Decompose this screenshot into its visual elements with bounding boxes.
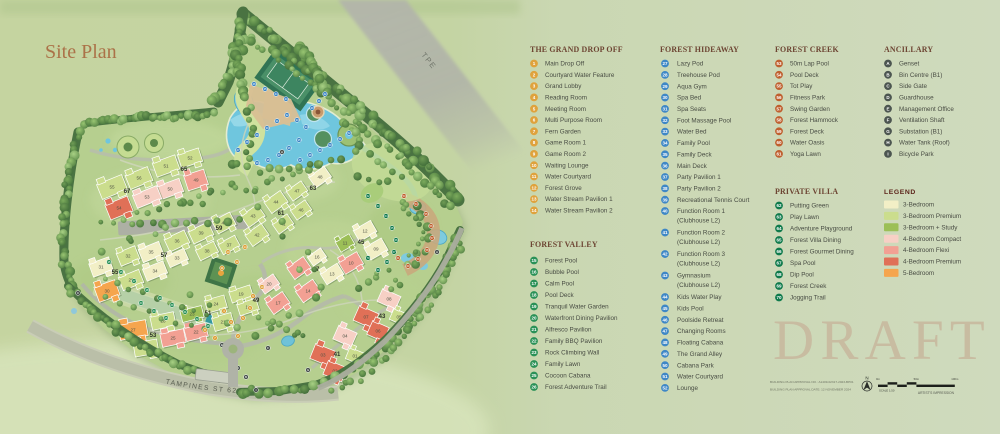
svg-text:10: 10 (260, 285, 264, 289)
svg-text:56: 56 (776, 95, 782, 100)
svg-text:54: 54 (116, 206, 122, 211)
svg-text:63: 63 (776, 215, 782, 220)
svg-text:55: 55 (112, 270, 119, 276)
svg-text:44: 44 (662, 295, 668, 300)
svg-text:Poolside Retreat: Poolside Retreat (677, 317, 724, 324)
svg-text:Management Office: Management Office (899, 106, 954, 113)
svg-text:25: 25 (164, 316, 168, 320)
svg-text:43: 43 (662, 273, 668, 278)
svg-text:53: 53 (150, 333, 157, 339)
svg-text:48: 48 (308, 153, 312, 157)
svg-text:33: 33 (174, 256, 180, 261)
svg-text:18: 18 (145, 288, 149, 292)
svg-text:48: 48 (317, 175, 323, 180)
svg-text:35: 35 (297, 138, 301, 142)
svg-text:(Clubhouse L2): (Clubhouse L2) (677, 217, 720, 224)
svg-text:65: 65 (181, 167, 188, 173)
svg-text:Family Pool: Family Pool (677, 140, 710, 147)
svg-text:Alfresco Pavilion: Alfresco Pavilion (545, 327, 592, 334)
svg-text:65: 65 (390, 226, 394, 230)
svg-text:29: 29 (662, 84, 668, 89)
svg-text:43: 43 (250, 214, 256, 219)
svg-text:39: 39 (662, 197, 668, 202)
svg-text:Waterfront Dining Pavilion: Waterfront Dining Pavilion (545, 315, 618, 322)
svg-text:THE GRAND DROP OFF: THE GRAND DROP OFF (530, 45, 623, 54)
svg-text:Fitness Park: Fitness Park (790, 95, 826, 102)
svg-text:49: 49 (662, 351, 668, 356)
svg-text:59: 59 (216, 226, 223, 232)
svg-text:Forest Adventure Trail: Forest Adventure Trail (545, 384, 607, 391)
svg-text:58: 58 (776, 118, 782, 123)
svg-text:Calm Pool: Calm Pool (545, 281, 574, 288)
svg-text:Kids Water Play: Kids Water Play (677, 294, 722, 301)
svg-text:10: 10 (348, 261, 354, 266)
svg-text:51: 51 (338, 137, 342, 141)
svg-text:24: 24 (152, 309, 156, 313)
svg-text:21: 21 (183, 310, 187, 314)
svg-text:Lazy Pod: Lazy Pod (677, 61, 704, 68)
svg-text:Spa Bed: Spa Bed (677, 95, 702, 102)
svg-text:01: 01 (352, 354, 358, 359)
svg-text:46: 46 (298, 208, 304, 213)
svg-text:11: 11 (220, 266, 223, 270)
svg-text:03: 03 (320, 353, 326, 358)
svg-text:37: 37 (662, 175, 668, 180)
svg-text:68: 68 (776, 272, 782, 277)
svg-text:70: 70 (776, 295, 782, 300)
svg-text:E: E (886, 106, 889, 111)
svg-text:Forest Deck: Forest Deck (790, 128, 825, 135)
svg-text:DRAFT: DRAFT (773, 309, 991, 372)
svg-text:PRIVATE VILLA: PRIVATE VILLA (775, 187, 838, 196)
svg-text:Main Drop Off: Main Drop Off (545, 61, 584, 68)
svg-text:66: 66 (394, 238, 398, 242)
svg-text:53: 53 (144, 195, 150, 200)
svg-text:Fern Garden: Fern Garden (545, 128, 581, 135)
svg-text:(Clubhouse L2): (Clubhouse L2) (677, 282, 720, 289)
svg-text:Pool Deck: Pool Deck (545, 292, 575, 299)
svg-text:Multi Purpose Room: Multi Purpose Room (545, 117, 602, 124)
svg-text:61: 61 (776, 152, 782, 157)
svg-text:04: 04 (342, 334, 348, 339)
svg-text:Floating Cabana: Floating Cabana (677, 340, 724, 347)
svg-text:LEGEND: LEGEND (884, 189, 916, 196)
svg-text:Forest Villa Dining: Forest Villa Dining (790, 237, 841, 244)
svg-text:56: 56 (429, 224, 433, 228)
svg-text:44: 44 (274, 92, 278, 96)
svg-text:69: 69 (776, 284, 782, 289)
svg-text:Party Pavilion 1: Party Pavilion 1 (677, 174, 721, 181)
svg-text:17: 17 (275, 301, 281, 306)
svg-text:50m Lap Pool: 50m Lap Pool (790, 61, 829, 68)
svg-text:Jogging Trail: Jogging Trail (790, 295, 826, 302)
svg-text:A: A (436, 250, 438, 254)
svg-text:24: 24 (213, 302, 219, 307)
svg-text:67: 67 (776, 261, 782, 266)
svg-text:12: 12 (235, 260, 239, 264)
svg-text:38: 38 (662, 186, 668, 191)
svg-text:63: 63 (376, 204, 380, 208)
svg-text:17: 17 (531, 281, 537, 286)
svg-text:56: 56 (136, 176, 142, 181)
svg-text:14: 14 (305, 289, 311, 294)
svg-text:39: 39 (255, 161, 259, 165)
svg-text:55: 55 (776, 84, 782, 89)
svg-text:Family Deck: Family Deck (677, 151, 712, 158)
svg-text:BUILDING PLAN APPROVAL NO.: A1: BUILDING PLAN APPROVAL NO.: A1409-02317-… (770, 380, 854, 384)
svg-text:67: 67 (392, 250, 396, 254)
svg-text:41: 41 (334, 352, 341, 358)
svg-text:G: G (886, 129, 890, 134)
svg-text:B: B (245, 375, 247, 379)
svg-text:(Clubhouse L2): (Clubhouse L2) (677, 239, 720, 246)
svg-text:32: 32 (125, 254, 131, 259)
svg-text:47: 47 (294, 189, 300, 194)
svg-text:69: 69 (376, 268, 380, 272)
svg-text:Rock Climbing Wall: Rock Climbing Wall (545, 350, 599, 357)
svg-text:20: 20 (266, 282, 272, 287)
svg-text:38: 38 (204, 249, 210, 254)
svg-text:35: 35 (662, 152, 668, 157)
svg-text:45: 45 (358, 240, 365, 246)
svg-text:Swing Garden: Swing Garden (790, 106, 830, 113)
svg-text:61: 61 (278, 211, 285, 217)
svg-text:16: 16 (314, 255, 320, 260)
svg-text:50: 50 (328, 143, 332, 147)
svg-text:Cocoon Cabana: Cocoon Cabana (545, 373, 591, 380)
svg-text:65: 65 (776, 238, 782, 243)
svg-text:64: 64 (384, 214, 388, 218)
svg-text:49: 49 (193, 178, 199, 183)
svg-text:49: 49 (253, 298, 260, 304)
svg-text:26: 26 (206, 324, 210, 328)
svg-text:Waiting Lounge: Waiting Lounge (545, 162, 589, 169)
svg-text:57: 57 (161, 253, 168, 259)
svg-text:70: 70 (366, 256, 370, 260)
svg-text:14: 14 (531, 208, 537, 213)
svg-text:45: 45 (263, 87, 267, 91)
svg-text:ARTIST'S IMPRESSION: ARTIST'S IMPRESSION (918, 391, 955, 395)
svg-text:47: 47 (662, 329, 668, 334)
svg-text:30: 30 (662, 95, 668, 100)
svg-text:64: 64 (776, 226, 782, 231)
svg-text:Bin Centre (B1): Bin Centre (B1) (899, 72, 942, 79)
svg-text:16: 16 (119, 270, 123, 274)
svg-text:60: 60 (406, 264, 410, 268)
svg-text:FOREST CREEK: FOREST CREEK (775, 45, 840, 54)
svg-text:19: 19 (238, 292, 244, 297)
svg-text:Cabana Park: Cabana Park (677, 362, 715, 369)
svg-text:42: 42 (662, 252, 668, 257)
svg-text:30: 30 (104, 289, 110, 294)
svg-text:Main Deck: Main Deck (677, 163, 708, 170)
svg-text:25: 25 (531, 373, 537, 378)
svg-text:3-Bedroom + Study: 3-Bedroom + Study (903, 224, 958, 231)
svg-text:Changing Rooms: Changing Rooms (677, 328, 726, 335)
svg-text:N: N (865, 376, 868, 381)
svg-text:H: H (281, 150, 283, 154)
svg-text:Spa Pool: Spa Pool (790, 260, 816, 267)
svg-text:Meeting Room: Meeting Room (545, 106, 586, 113)
svg-text:Dip Pool: Dip Pool (790, 272, 814, 279)
svg-text:32: 32 (285, 113, 289, 117)
svg-text:Play Lawn: Play Lawn (790, 214, 820, 221)
svg-text:07: 07 (363, 315, 369, 320)
svg-text:13: 13 (226, 250, 230, 254)
svg-text:50: 50 (662, 363, 668, 368)
svg-text:63: 63 (310, 186, 317, 192)
svg-text:100m: 100m (951, 377, 959, 381)
svg-text:23: 23 (531, 350, 537, 355)
svg-text:39: 39 (198, 231, 204, 236)
svg-text:3-Bedroom: 3-Bedroom (903, 202, 934, 209)
svg-text:41: 41 (662, 230, 668, 235)
svg-text:66: 66 (776, 249, 782, 254)
svg-text:58: 58 (425, 248, 429, 252)
svg-text:51: 51 (662, 374, 668, 379)
svg-text:52: 52 (347, 131, 351, 135)
svg-text:44: 44 (273, 200, 279, 205)
svg-text:Side Gate: Side Gate (899, 83, 928, 90)
svg-text:62: 62 (366, 194, 370, 198)
svg-text:22: 22 (195, 317, 199, 321)
svg-text:38: 38 (266, 158, 270, 162)
svg-text:19: 19 (158, 296, 162, 300)
svg-text:40: 40 (662, 209, 668, 214)
svg-text:Aqua Gym: Aqua Gym (677, 83, 707, 90)
svg-text:Water Tank (Roof): Water Tank (Roof) (899, 140, 950, 147)
svg-text:54: 54 (776, 72, 782, 77)
svg-text:Function Room 2: Function Room 2 (677, 230, 725, 237)
svg-text:Gymnasium: Gymnasium (677, 273, 711, 280)
svg-text:Kids Pool: Kids Pool (677, 306, 704, 313)
svg-text:59: 59 (776, 129, 782, 134)
svg-text:4-Bedroom Flexi: 4-Bedroom Flexi (903, 247, 949, 254)
svg-text:Game Room 1: Game Room 1 (545, 140, 586, 147)
svg-text:14: 14 (243, 245, 247, 249)
svg-text:Bubble Pool: Bubble Pool (545, 269, 579, 276)
svg-text:23: 23 (139, 301, 143, 305)
svg-text:48: 48 (662, 340, 668, 345)
svg-text:30: 30 (265, 126, 269, 130)
svg-text:60: 60 (776, 140, 782, 145)
svg-text:36: 36 (662, 163, 668, 168)
svg-text:0m: 0m (876, 377, 881, 381)
svg-text:I: I (887, 152, 888, 157)
svg-text:Reading Room: Reading Room (545, 95, 587, 102)
svg-text:Guardhouse: Guardhouse (899, 95, 934, 102)
svg-text:20: 20 (170, 303, 174, 307)
svg-text:20: 20 (531, 316, 537, 321)
svg-text:Function Room 3: Function Room 3 (677, 251, 725, 258)
svg-text:36: 36 (174, 239, 180, 244)
svg-text:28: 28 (245, 140, 249, 144)
svg-text:29: 29 (255, 133, 259, 137)
svg-text:22: 22 (193, 330, 199, 335)
svg-text:49: 49 (318, 148, 322, 152)
svg-text:Game Room 2: Game Room 2 (545, 151, 586, 158)
svg-text:Forest Pool: Forest Pool (545, 258, 577, 265)
svg-text:12: 12 (362, 229, 368, 234)
svg-text:24: 24 (531, 362, 537, 367)
svg-text:52: 52 (187, 156, 193, 161)
svg-text:Yoga Lawn: Yoga Lawn (790, 151, 821, 158)
svg-text:Putting Green: Putting Green (790, 203, 829, 210)
svg-text:41: 41 (317, 99, 321, 103)
svg-text:22: 22 (531, 339, 537, 344)
svg-text:55: 55 (424, 212, 428, 216)
svg-text:50: 50 (167, 187, 173, 192)
svg-text:19: 19 (531, 304, 537, 309)
svg-text:31: 31 (275, 119, 279, 123)
svg-text:35: 35 (148, 250, 154, 255)
svg-text:Water Oasis: Water Oasis (790, 140, 824, 147)
svg-text:46: 46 (252, 82, 256, 86)
svg-text:46: 46 (662, 317, 668, 322)
svg-text:Water Bed: Water Bed (677, 129, 707, 136)
svg-text:The Grand Alley: The Grand Alley (677, 351, 723, 358)
svg-text:43: 43 (379, 314, 386, 320)
svg-text:62: 62 (776, 203, 782, 208)
svg-text:36: 36 (287, 146, 291, 150)
svg-text:50m: 50m (914, 377, 920, 381)
svg-text:34: 34 (662, 141, 668, 146)
svg-text:57: 57 (776, 106, 782, 111)
svg-text:31: 31 (98, 265, 104, 270)
svg-text:42: 42 (323, 92, 327, 96)
svg-text:28: 28 (662, 72, 668, 77)
svg-text:31: 31 (662, 107, 668, 112)
svg-text:FOREST VALLEY: FOREST VALLEY (530, 240, 598, 249)
svg-text:34: 34 (152, 269, 158, 274)
svg-text:11: 11 (343, 241, 348, 246)
svg-text:06: 06 (375, 329, 381, 334)
svg-text:4-Bedroom Premium: 4-Bedroom Premium (903, 259, 961, 266)
svg-text:11: 11 (532, 174, 537, 179)
svg-text:Forest Gourmet Dining: Forest Gourmet Dining (790, 249, 854, 256)
svg-text:55: 55 (109, 185, 115, 190)
svg-text:Genset: Genset (899, 61, 920, 68)
svg-text:Grand Lobby: Grand Lobby (545, 83, 582, 90)
svg-text:26: 26 (531, 385, 537, 390)
svg-text:18: 18 (531, 293, 537, 298)
svg-text:27: 27 (236, 148, 240, 152)
svg-text:Family Lawn: Family Lawn (545, 361, 581, 368)
svg-text:Bicycle Park: Bicycle Park (899, 151, 934, 158)
svg-text:FOREST HIDEAWAY: FOREST HIDEAWAY (660, 45, 739, 54)
svg-text:F: F (267, 346, 269, 350)
svg-text:52: 52 (662, 385, 668, 390)
svg-text:45: 45 (662, 306, 668, 311)
svg-text:SCALE 1:50: SCALE 1:50 (879, 389, 895, 393)
svg-text:Function Room 1: Function Room 1 (677, 208, 725, 215)
svg-text:57: 57 (430, 236, 434, 240)
svg-text:32: 32 (662, 118, 668, 123)
svg-text:09: 09 (373, 247, 379, 252)
svg-text:12: 12 (531, 185, 537, 190)
svg-text:43: 43 (284, 97, 288, 101)
svg-text:16: 16 (531, 270, 537, 275)
svg-text:68: 68 (385, 260, 389, 264)
svg-text:27: 27 (130, 328, 136, 333)
svg-text:42: 42 (254, 233, 260, 238)
svg-text:4-Bedroom Compact: 4-Bedroom Compact (903, 236, 961, 243)
svg-text:15: 15 (107, 260, 111, 264)
svg-text:27: 27 (662, 61, 668, 66)
svg-text:Treehouse Pod: Treehouse Pod (677, 72, 720, 79)
svg-text:Family BBQ Pavilion: Family BBQ Pavilion (545, 338, 603, 345)
svg-text:Lounge: Lounge (677, 385, 699, 392)
svg-text:Pool Deck: Pool Deck (790, 72, 820, 79)
svg-text:13: 13 (329, 272, 335, 277)
svg-text:10: 10 (531, 163, 537, 168)
svg-text:33: 33 (295, 118, 299, 122)
svg-text:13: 13 (531, 197, 537, 202)
svg-text:67: 67 (124, 189, 131, 195)
svg-text:Forest Hammock: Forest Hammock (790, 117, 839, 124)
svg-text:61: 61 (396, 256, 400, 260)
svg-text:54: 54 (414, 202, 418, 206)
svg-text:Courtyard Water Feature: Courtyard Water Feature (545, 72, 615, 79)
svg-text:51: 51 (163, 164, 169, 169)
svg-text:21: 21 (531, 327, 537, 332)
svg-text:47: 47 (298, 158, 302, 162)
svg-text:ANCILLARY: ANCILLARY (884, 45, 933, 54)
svg-text:Adventure Playground: Adventure Playground (790, 226, 853, 233)
svg-text:53: 53 (776, 61, 782, 66)
svg-text:Site Plan: Site Plan (45, 41, 117, 63)
svg-text:25: 25 (170, 336, 176, 341)
svg-text:Foot Massage Pool: Foot Massage Pool (677, 117, 731, 124)
svg-text:34: 34 (304, 125, 308, 129)
svg-text:3-Bedroom Premium: 3-Bedroom Premium (903, 213, 961, 220)
svg-text:33: 33 (662, 129, 668, 134)
svg-text:37: 37 (226, 243, 232, 248)
svg-text:40: 40 (310, 106, 314, 110)
svg-text:Ventilation Shaft: Ventilation Shaft (899, 117, 945, 124)
svg-text:Water Courtyard: Water Courtyard (545, 174, 591, 181)
svg-text:5-Bedroom: 5-Bedroom (903, 270, 934, 277)
svg-text:53: 53 (402, 194, 406, 198)
svg-text:F: F (887, 118, 890, 123)
svg-text:(Clubhouse L2): (Clubhouse L2) (677, 260, 720, 267)
svg-text:Water Stream Pavilion 2: Water Stream Pavilion 2 (545, 208, 613, 215)
svg-text:Party Pavilion 2: Party Pavilion 2 (677, 185, 721, 192)
svg-text:Recreational Tennis Court: Recreational Tennis Court (677, 197, 750, 204)
svg-text:Tranquil Water Garden: Tranquil Water Garden (545, 304, 609, 311)
svg-text:H: H (886, 140, 889, 145)
svg-text:Spa Seats: Spa Seats (677, 106, 706, 113)
svg-text:17: 17 (132, 279, 136, 283)
svg-text:15: 15 (531, 258, 537, 263)
svg-text:BUILDING PLAN APPROVAL DATE: 1: BUILDING PLAN APPROVAL DATE: 12 NOVEMBER… (770, 388, 851, 392)
svg-text:Forest Grove: Forest Grove (545, 185, 582, 192)
svg-text:Tot Play: Tot Play (790, 83, 813, 90)
svg-text:59: 59 (416, 257, 420, 261)
svg-text:08: 08 (386, 297, 392, 302)
svg-text:Substation (B1): Substation (B1) (899, 128, 942, 135)
svg-text:Water Courtyard: Water Courtyard (677, 374, 723, 381)
svg-text:Forest Creek: Forest Creek (790, 283, 827, 290)
svg-text:Water Stream Pavilion 1: Water Stream Pavilion 1 (545, 196, 613, 203)
